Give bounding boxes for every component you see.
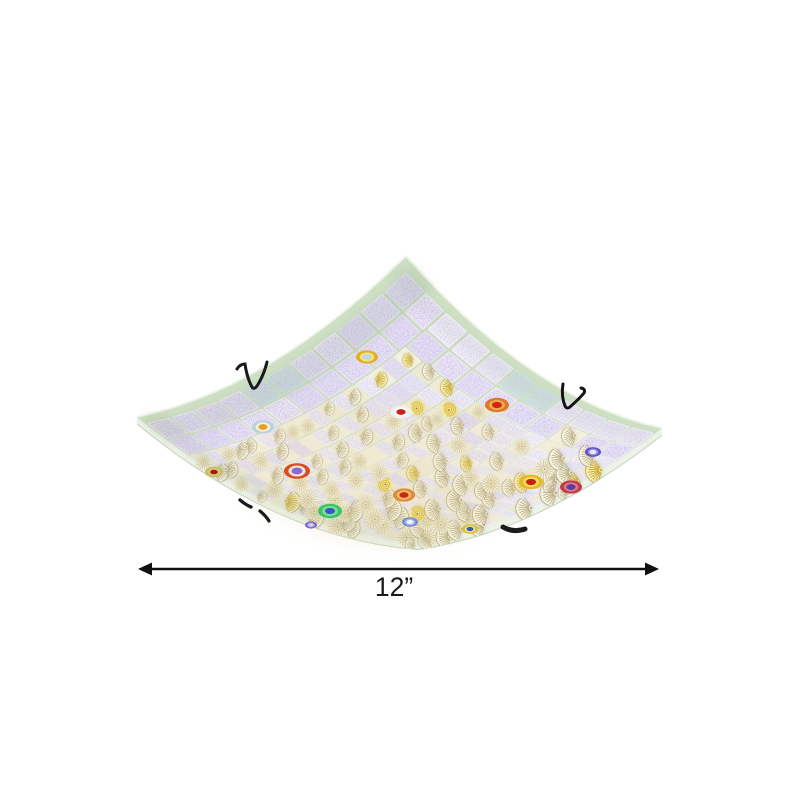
svg-text:12”: 12” [375, 572, 413, 602]
